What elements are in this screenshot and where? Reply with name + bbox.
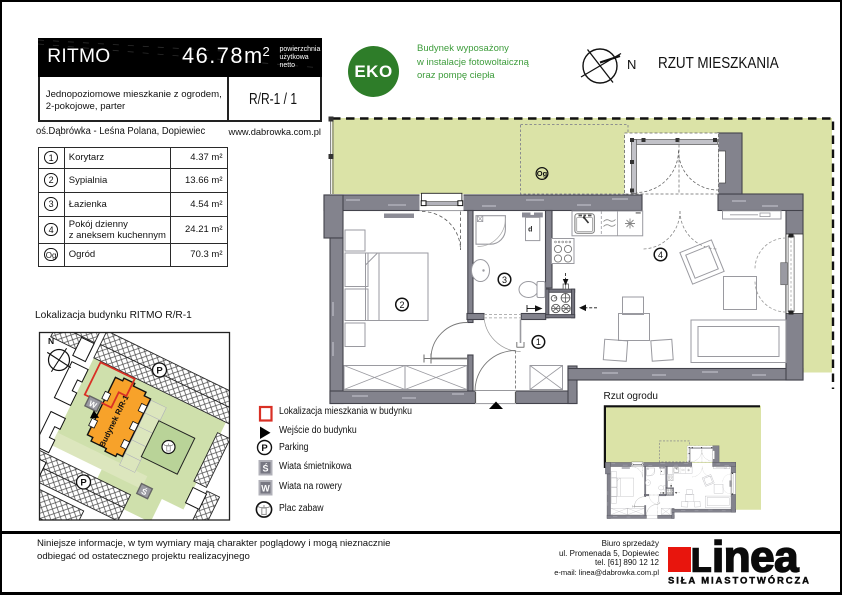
svg-text:P: P <box>80 478 87 489</box>
svg-text:Ś: Ś <box>262 463 268 474</box>
svg-text:P: P <box>156 366 163 377</box>
svg-text:inea: inea <box>712 533 799 582</box>
svg-text:2: 2 <box>399 300 404 310</box>
svg-text:P: P <box>261 443 268 454</box>
svg-text:L: L <box>691 543 711 580</box>
svg-text:3: 3 <box>502 275 507 285</box>
svg-text:4: 4 <box>658 250 663 260</box>
svg-text:Og: Og <box>537 169 548 178</box>
svg-text:W: W <box>261 484 270 494</box>
svg-text:1: 1 <box>536 337 541 347</box>
svg-text:N: N <box>48 336 54 346</box>
